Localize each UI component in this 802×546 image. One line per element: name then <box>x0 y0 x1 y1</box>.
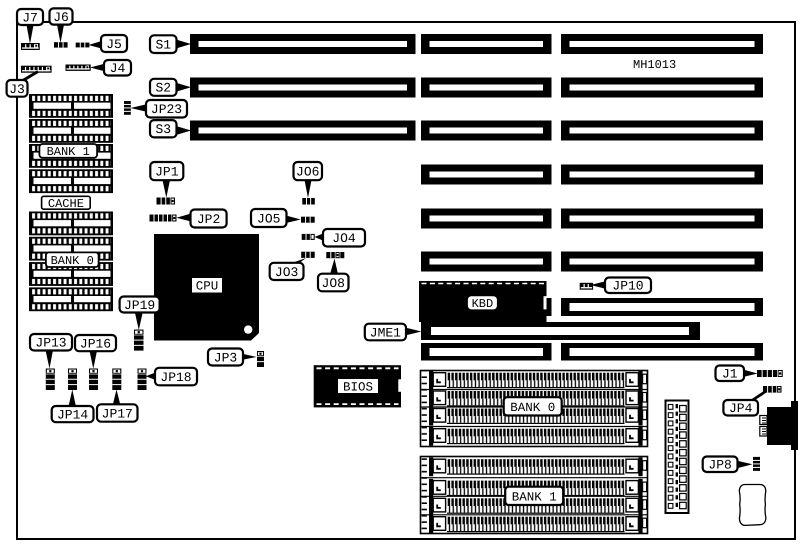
svg-text:JP16: JP16 <box>80 337 111 352</box>
svg-text:JP1: JP1 <box>155 165 179 180</box>
svg-text:JO5: JO5 <box>257 211 280 226</box>
svg-text:J1: J1 <box>722 367 738 382</box>
svg-text:JP2: JP2 <box>197 212 220 227</box>
svg-text:JO3: JO3 <box>275 265 298 280</box>
svg-text:JO4: JO4 <box>332 231 356 246</box>
svg-text:BANK 0: BANK 0 <box>510 401 555 415</box>
svg-text:JO6: JO6 <box>296 165 319 180</box>
svg-text:JP23: JP23 <box>151 102 182 117</box>
svg-text:J5: J5 <box>106 37 122 52</box>
svg-text:J7: J7 <box>22 10 38 25</box>
svg-text:CACHE: CACHE <box>48 197 84 211</box>
svg-text:JP13: JP13 <box>35 336 66 351</box>
svg-text:BIOS: BIOS <box>343 381 373 395</box>
svg-text:J4: J4 <box>110 61 126 76</box>
svg-text:JO8: JO8 <box>322 276 345 291</box>
svg-text:BANK 0: BANK 0 <box>51 254 94 268</box>
svg-text:JP19: JP19 <box>124 298 155 313</box>
svg-text:J6: J6 <box>53 10 69 25</box>
svg-text:BANK 1: BANK 1 <box>512 490 557 504</box>
svg-text:JME1: JME1 <box>370 325 401 340</box>
svg-text:JP10: JP10 <box>612 279 643 294</box>
svg-text:JP17: JP17 <box>102 406 133 421</box>
svg-text:KBD: KBD <box>472 297 494 311</box>
svg-text:JP3: JP3 <box>214 350 237 365</box>
svg-text:JP14: JP14 <box>57 408 88 423</box>
svg-text:S2: S2 <box>155 81 171 96</box>
svg-text:JP4: JP4 <box>729 401 753 416</box>
svg-text:CPU: CPU <box>196 280 219 294</box>
svg-text:J3: J3 <box>9 82 25 97</box>
svg-text:JP18: JP18 <box>160 370 191 385</box>
svg-text:BANK 1: BANK 1 <box>47 145 90 159</box>
svg-text:MH1013: MH1013 <box>633 58 676 72</box>
svg-text:JP8: JP8 <box>708 458 731 473</box>
svg-text:S1: S1 <box>155 38 171 53</box>
svg-text:S3: S3 <box>155 122 171 137</box>
